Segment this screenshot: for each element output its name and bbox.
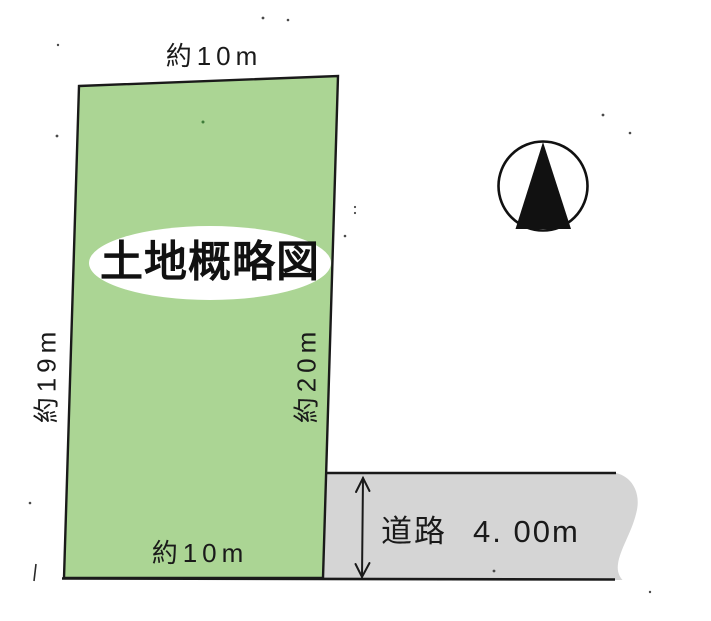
dimension-label-right: 約20m [293, 327, 322, 424]
land-sketch-drawing [0, 0, 711, 621]
road-label: 道路 4. 00m [381, 515, 580, 549]
dimension-label-bottom: 約10m [115, 539, 285, 568]
road-width-value: 4. 00m [473, 515, 580, 549]
dimension-label-left: 約19m [33, 327, 62, 424]
road-name: 道路 [381, 515, 447, 549]
diagram-title: 土地概略図 [100, 239, 320, 286]
north-compass-icon [499, 142, 588, 231]
land-sketch-canvas: 約10m 約19m 約20m 約10m 土地概略図 道路 4. 00m [0, 0, 711, 621]
dimension-label-top: 約10m [129, 42, 299, 71]
scan-artifact-tick [34, 564, 36, 581]
